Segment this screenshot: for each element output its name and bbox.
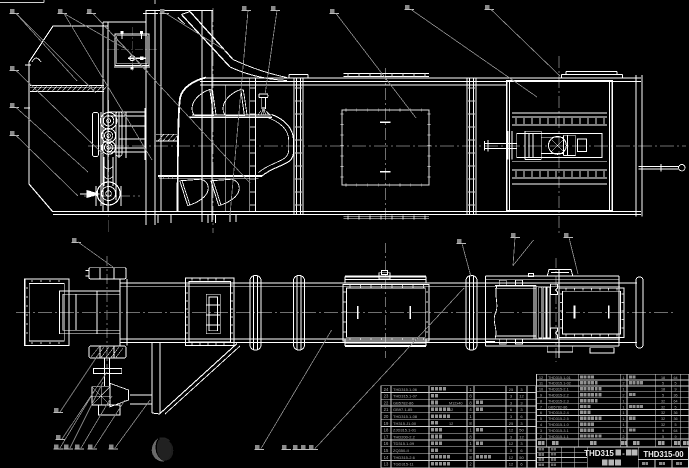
svg-text:1: 1 — [622, 398, 624, 403]
svg-text:THD315-1.0: THD315-1.0 — [548, 423, 569, 427]
svg-text:4: 4 — [469, 407, 472, 412]
svg-text:6: 6 — [540, 410, 542, 415]
svg-text:9: 9 — [540, 393, 542, 398]
svg-text:20: 20 — [384, 414, 389, 419]
svg-text:12: 12 — [449, 408, 453, 412]
svg-text:THD200-2.2: THD200-2.2 — [393, 434, 416, 439]
svg-text:32: 32 — [661, 411, 665, 415]
svg-text:25: 25 — [509, 387, 514, 392]
svg-text:22: 22 — [384, 400, 389, 405]
svg-text:2: 2 — [622, 434, 624, 439]
svg-text:8: 8 — [469, 448, 472, 453]
svg-text:THD315.1-07: THD315.1-07 — [393, 394, 418, 399]
svg-text:1: 1 — [622, 410, 624, 415]
svg-text:2: 2 — [622, 393, 624, 398]
svg-text:THD315.1-06: THD315.1-06 — [393, 387, 418, 392]
svg-text:2: 2 — [622, 381, 624, 386]
svg-text:7: 7 — [540, 404, 542, 409]
svg-text:9: 9 — [662, 429, 664, 433]
svg-text:32: 32 — [661, 405, 665, 409]
svg-text:21: 21 — [384, 407, 389, 412]
svg-text:3: 3 — [520, 441, 523, 446]
svg-text:THD315-00: THD315-00 — [643, 450, 684, 459]
svg-text:36: 36 — [673, 417, 677, 421]
svg-text:GB97.1-85: GB97.1-85 — [393, 407, 413, 412]
svg-text:3: 3 — [520, 407, 523, 412]
svg-text:THD315.1-08: THD315.1-08 — [393, 414, 418, 419]
svg-text:50: 50 — [519, 428, 524, 433]
svg-text:64: 64 — [673, 376, 677, 380]
svg-text:15: 15 — [384, 448, 389, 453]
svg-text:6: 6 — [520, 462, 523, 467]
svg-text:9: 9 — [674, 435, 676, 439]
svg-text:12: 12 — [509, 455, 514, 460]
svg-text:THD315-2.1: THD315-2.1 — [548, 388, 569, 392]
svg-text:5: 5 — [662, 382, 664, 386]
svg-text:64: 64 — [673, 429, 677, 433]
svg-text:1: 1 — [622, 422, 624, 427]
svg-text:1: 1 — [469, 428, 472, 433]
svg-text:3: 3 — [510, 448, 513, 453]
svg-text:M12x40: M12x40 — [449, 401, 463, 405]
svg-text:12: 12 — [509, 441, 514, 446]
svg-text:THD315-3.1: THD315-3.1 — [548, 429, 569, 433]
svg-text:8: 8 — [540, 398, 542, 403]
svg-text:12: 12 — [519, 434, 524, 439]
svg-text:36: 36 — [673, 411, 677, 415]
svg-text:64: 64 — [673, 399, 677, 403]
svg-text:9: 9 — [674, 388, 676, 392]
svg-text:THD315-2.6: THD315-2.6 — [393, 455, 416, 460]
svg-text:50: 50 — [519, 455, 524, 460]
svg-text:THD315-1.1: THD315-1.1 — [548, 435, 569, 439]
svg-text:1: 1 — [469, 441, 472, 446]
svg-text:14: 14 — [384, 455, 389, 460]
svg-text:12: 12 — [539, 375, 543, 380]
svg-text:3: 3 — [540, 428, 542, 433]
svg-text:8: 8 — [469, 400, 472, 405]
svg-text:1: 1 — [622, 404, 624, 409]
svg-text:THD315.1-01: THD315.1-01 — [548, 376, 571, 380]
svg-text:6: 6 — [510, 407, 513, 412]
svg-text:8: 8 — [469, 455, 472, 460]
svg-text:2: 2 — [540, 434, 542, 439]
svg-text:19: 19 — [384, 421, 389, 426]
svg-text:5: 5 — [662, 394, 664, 398]
svg-text:3: 3 — [510, 400, 513, 405]
svg-text:32: 32 — [661, 417, 665, 421]
svg-text:3: 3 — [520, 387, 523, 392]
svg-text:1: 1 — [622, 416, 624, 421]
svg-text:8: 8 — [469, 394, 472, 399]
svg-text:ZQ350-II: ZQ350-II — [393, 448, 409, 453]
svg-text:THD315-2.4: THD315-2.4 — [548, 411, 569, 415]
svg-text:TD315.1-09: TD315.1-09 — [393, 441, 415, 446]
svg-text:1: 1 — [622, 375, 624, 380]
svg-text:24: 24 — [384, 387, 389, 392]
svg-text:1: 1 — [469, 387, 472, 392]
svg-text:5: 5 — [540, 416, 542, 421]
svg-text:THD315-2.2: THD315-2.2 — [548, 394, 569, 398]
svg-text:THD315-2.3: THD315-2.3 — [548, 399, 569, 403]
svg-text:8: 8 — [469, 434, 472, 439]
svg-text:10: 10 — [539, 387, 544, 392]
svg-text:16: 16 — [384, 441, 389, 446]
svg-text:25: 25 — [509, 421, 514, 426]
svg-text:GB5782-86: GB5782-86 — [548, 405, 567, 409]
svg-text:2: 2 — [469, 462, 472, 467]
svg-text:5: 5 — [674, 423, 676, 427]
svg-text:18: 18 — [661, 376, 665, 380]
svg-text:13: 13 — [384, 462, 389, 467]
svg-text:32: 32 — [661, 399, 665, 403]
svg-text:1: 1 — [622, 387, 624, 392]
svg-text:5: 5 — [674, 382, 676, 386]
svg-text:TH315.J1-00: TH315.J1-00 — [393, 421, 417, 426]
svg-text:6: 6 — [520, 414, 523, 419]
svg-text:8: 8 — [469, 421, 472, 426]
svg-text:1: 1 — [622, 428, 624, 433]
svg-text:4: 4 — [540, 422, 543, 427]
svg-text:THD315: THD315 — [584, 449, 614, 458]
svg-text:23: 23 — [384, 394, 389, 399]
svg-text:12: 12 — [519, 394, 524, 399]
svg-text:THD315.1-02: THD315.1-02 — [548, 382, 571, 386]
svg-text:11: 11 — [539, 381, 543, 386]
svg-text:3: 3 — [510, 434, 513, 439]
svg-text:3: 3 — [510, 414, 513, 419]
svg-text:GB5782-86: GB5782-86 — [393, 400, 414, 405]
svg-text:-: - — [622, 449, 625, 458]
svg-text:ZJD315.1-01: ZJD315.1-01 — [393, 428, 417, 433]
svg-text:THD315-2.5: THD315-2.5 — [548, 417, 569, 421]
svg-text:5: 5 — [674, 405, 676, 409]
svg-text:12: 12 — [449, 422, 453, 426]
svg-text:5: 5 — [662, 435, 664, 439]
svg-text:17: 17 — [384, 434, 389, 439]
svg-text:6: 6 — [520, 448, 523, 453]
svg-text:36: 36 — [673, 394, 677, 398]
svg-text:18: 18 — [661, 388, 665, 392]
svg-text:TGD315-11: TGD315-11 — [393, 462, 414, 467]
svg-text:18: 18 — [384, 428, 389, 433]
svg-text:12: 12 — [509, 462, 514, 467]
svg-text:3: 3 — [510, 394, 513, 399]
svg-text:3: 3 — [520, 421, 523, 426]
svg-text:1: 1 — [469, 414, 472, 419]
svg-text:3: 3 — [520, 400, 523, 405]
svg-text:32: 32 — [661, 423, 665, 427]
svg-text:12: 12 — [509, 428, 514, 433]
